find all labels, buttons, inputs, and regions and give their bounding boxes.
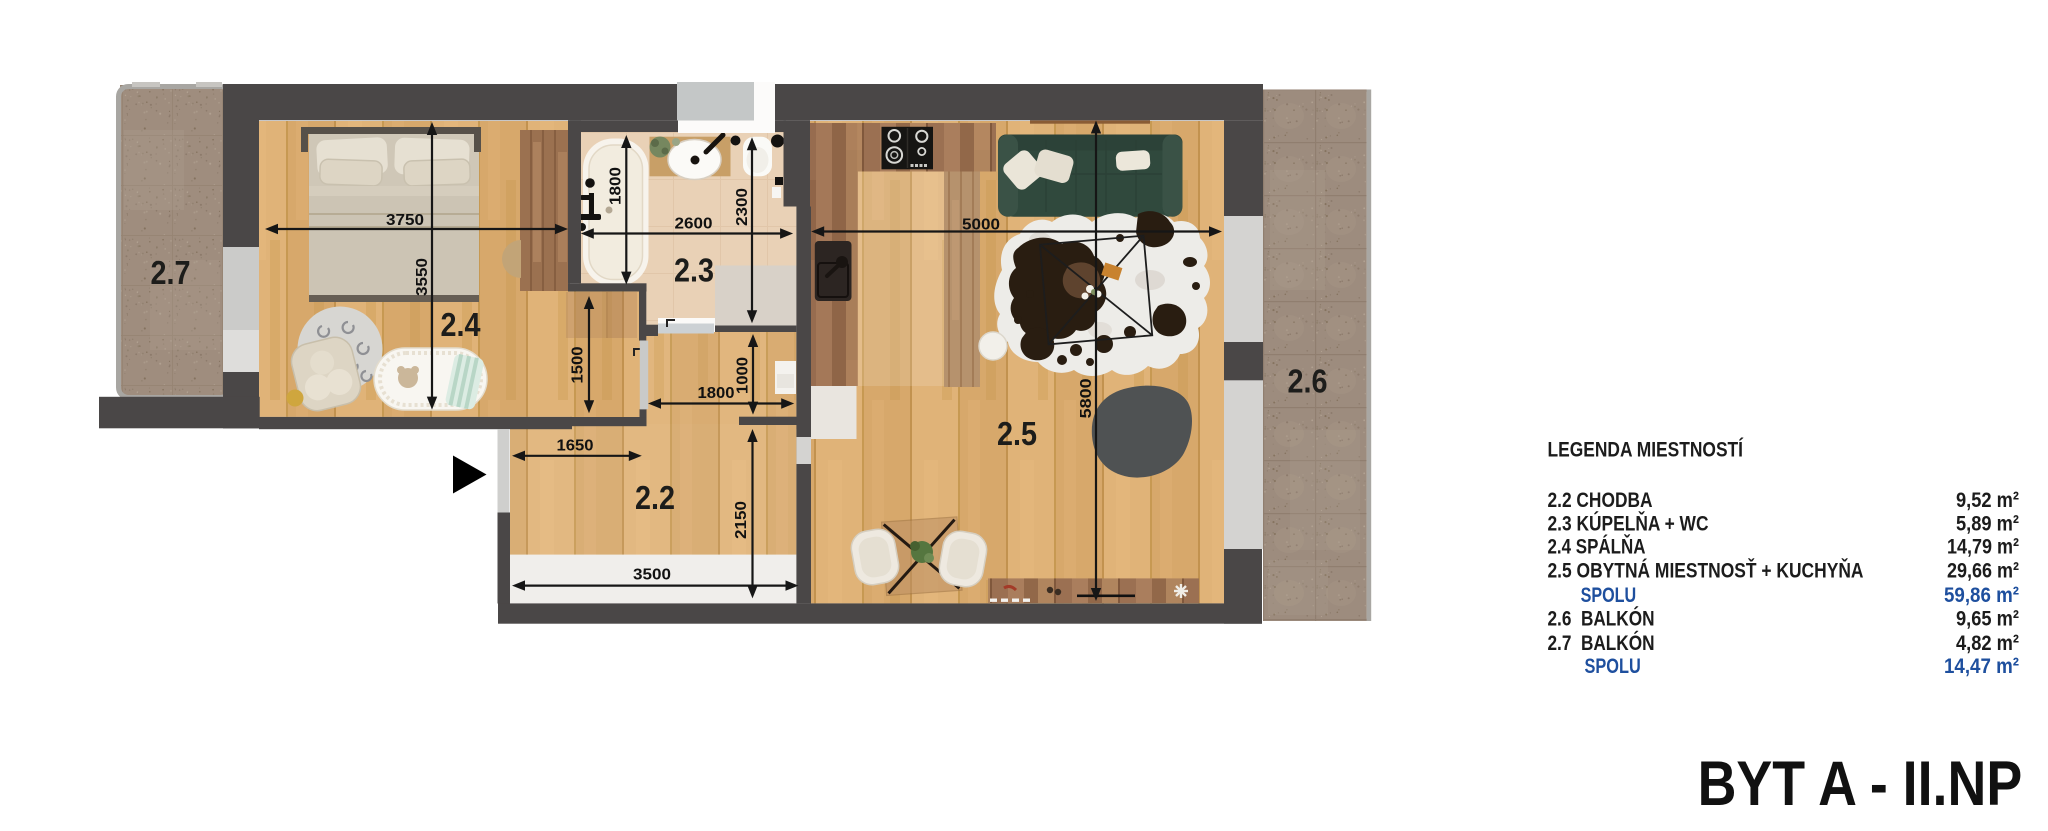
svg-text:5000: 5000 bbox=[962, 217, 1000, 234]
svg-text:1000: 1000 bbox=[735, 357, 752, 394]
svg-text:BYT A - II.NP: BYT A - II.NP bbox=[1698, 749, 2023, 819]
svg-text:3550: 3550 bbox=[414, 258, 431, 296]
svg-text:2.3: 2.3 bbox=[674, 252, 714, 289]
svg-text:SPOLU: SPOLU bbox=[1581, 583, 1637, 607]
svg-text:14,79 m²: 14,79 m² bbox=[1947, 535, 2019, 559]
svg-text:9,52 m²: 9,52 m² bbox=[1956, 488, 2019, 512]
svg-text:2.4 SPÁLŇA: 2.4 SPÁLŇA bbox=[1548, 534, 1646, 559]
svg-text:2.5 OBYTNÁ MIESTNOSŤ + KUCHYŇA: 2.5 OBYTNÁ MIESTNOSŤ + KUCHYŇA bbox=[1548, 558, 1864, 583]
svg-text:4,82 m²: 4,82 m² bbox=[1956, 631, 2019, 655]
svg-text:2600: 2600 bbox=[675, 216, 713, 233]
svg-text:2.6: 2.6 bbox=[1288, 363, 1328, 400]
svg-text:2150: 2150 bbox=[733, 501, 750, 539]
svg-text:5,89 m²: 5,89 m² bbox=[1956, 512, 2019, 536]
svg-text:1650: 1650 bbox=[557, 438, 594, 455]
svg-text:2.2: 2.2 bbox=[635, 479, 675, 516]
svg-text:29,66 m²: 29,66 m² bbox=[1947, 559, 2019, 583]
svg-text:9,65 m²: 9,65 m² bbox=[1956, 607, 2019, 631]
svg-text:14,47 m²: 14,47 m² bbox=[1944, 654, 2019, 678]
svg-text:SPOLU: SPOLU bbox=[1585, 654, 1641, 678]
svg-text:2.5: 2.5 bbox=[997, 415, 1037, 452]
svg-text:2.6 BALKÓN: 2.6 BALKÓN bbox=[1548, 606, 1655, 631]
svg-text:5800: 5800 bbox=[1078, 378, 1095, 418]
svg-text:LEGENDA MIESTNOSTÍ: LEGENDA MIESTNOSTÍ bbox=[1548, 437, 1744, 462]
svg-text:2.7 BALKÓN: 2.7 BALKÓN bbox=[1548, 630, 1655, 655]
svg-text:3500: 3500 bbox=[633, 567, 671, 584]
svg-text:1500: 1500 bbox=[570, 346, 587, 383]
svg-text:2300: 2300 bbox=[734, 188, 751, 226]
svg-text:2.2 CHODBA: 2.2 CHODBA bbox=[1548, 488, 1653, 512]
svg-text:2.3 KÚPELŇA + WC: 2.3 KÚPELŇA + WC bbox=[1548, 511, 1709, 536]
svg-text:3750: 3750 bbox=[386, 212, 424, 229]
svg-text:1800: 1800 bbox=[698, 385, 735, 402]
svg-text:2.4: 2.4 bbox=[441, 306, 482, 343]
svg-text:1800: 1800 bbox=[608, 167, 625, 205]
svg-text:2.7: 2.7 bbox=[151, 254, 191, 291]
svg-text:59,86 m²: 59,86 m² bbox=[1944, 583, 2019, 607]
